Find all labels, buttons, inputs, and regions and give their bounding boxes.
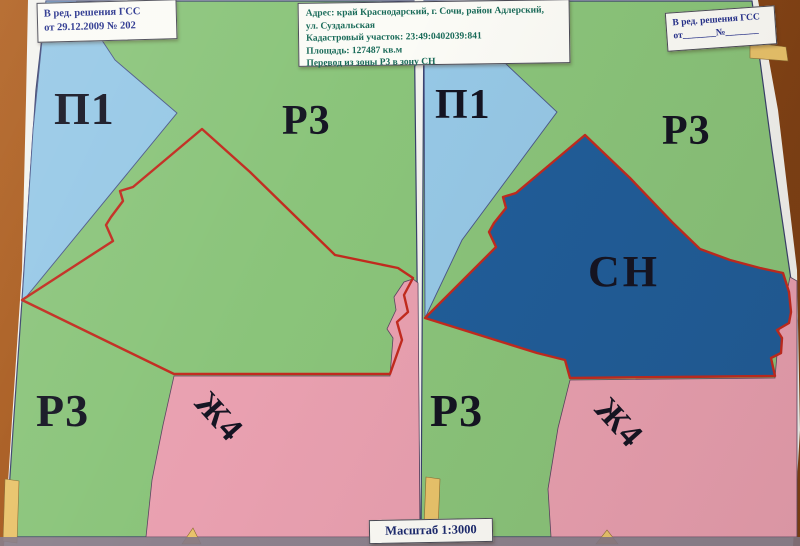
revision-note-right: В ред. решения ГСС от_______№_______ <box>665 5 777 51</box>
scale-note-label: Масштаб 1:3000 <box>385 522 477 538</box>
zone-label-p3-top-right: Р3 <box>662 110 711 152</box>
scale-note: Масштаб 1:3000 <box>369 518 493 544</box>
zoning-map-photo: П1 Р3 Р3 Ж4 П1 Р3 СН Р3 Ж4 В ред. решени… <box>0 0 800 546</box>
zone-label-p3-bottom-left: Р3 <box>36 388 89 434</box>
revision-note-left-line2: от 29.12.2009 № 202 <box>44 19 170 36</box>
zoning-map-drawing <box>0 0 800 546</box>
zone-label-p1-left: П1 <box>54 86 115 132</box>
zone-label-sn: СН <box>588 250 660 294</box>
left-panel-land-strip <box>3 479 19 543</box>
address-note: Адрес: край Краснодарский, г. Сочи, райо… <box>298 0 571 67</box>
zone-label-p3-top-left: Р3 <box>282 100 331 142</box>
revision-note-left: В ред. решения ГСС от 29.12.2009 № 202 <box>36 0 177 43</box>
zone-label-p1-right: П1 <box>435 84 491 126</box>
zone-label-p3-bottom-right: Р3 <box>430 388 483 434</box>
